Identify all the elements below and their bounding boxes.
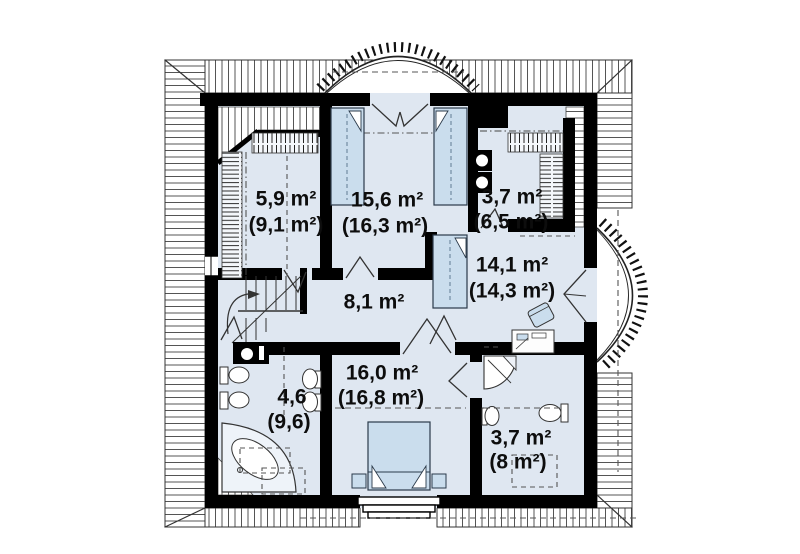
room-area-label: 3,7 m²	[491, 427, 552, 450]
bed-icon	[434, 108, 467, 205]
clothes-rail-icon	[252, 133, 318, 153]
wall-top-left-seg	[200, 93, 370, 106]
roof-band-right-upper	[597, 93, 632, 208]
clothes-rail-icon	[508, 133, 563, 152]
nightstand-icon	[352, 474, 366, 488]
wall-bottom-right-seg	[437, 495, 597, 508]
room-area-label: 15,6 m²	[351, 189, 423, 212]
roof-band-bottom-left	[205, 508, 360, 527]
wall-bottom-left-seg	[205, 495, 360, 508]
clothes-rail-icon	[222, 152, 242, 278]
room-area-total-label: (16,3 m²)	[342, 215, 428, 238]
wall-wardrobe-right-east	[563, 118, 575, 232]
bidet-icon	[220, 392, 249, 409]
bed-icon	[433, 235, 467, 308]
wall-right-upper	[584, 93, 597, 268]
desk-icon	[512, 330, 554, 353]
entrance-steps	[358, 497, 440, 518]
room-area-total-label: (9,6)	[267, 411, 310, 434]
room-area-label: 14,1 m²	[476, 254, 548, 277]
room-area-total-label: (16,8 m²)	[338, 387, 424, 410]
floor-plan: 5,9 m² (9,1 m²) 15,6 m² (16,3 m²) 3,7 m²…	[0, 0, 800, 554]
toilet-icon	[220, 367, 249, 384]
roof-band-right-lower	[597, 373, 632, 508]
room-area-label: 16,0 m²	[346, 362, 418, 385]
sink-icon	[482, 407, 499, 426]
nightstand-icon	[432, 474, 446, 488]
window-left-wall	[205, 256, 218, 276]
room-area-label: 4,6	[277, 386, 306, 409]
room-area-label: 5,9 m²	[256, 188, 317, 211]
washing-machine-icon	[241, 348, 254, 361]
wall-south-b	[332, 342, 400, 355]
room-area-total-label: (9,1 m²)	[249, 214, 324, 237]
washing-machine-icon	[472, 150, 492, 171]
floor-plan-drawing: 5,9 m² (9,1 m²) 15,6 m² (16,3 m²) 3,7 m²…	[0, 0, 800, 554]
wall-wardrobe-right-notch	[470, 106, 508, 128]
double-bed-icon	[368, 422, 430, 490]
room-area-label: 8,1 m²	[344, 291, 405, 314]
clothes-rail-icon	[540, 154, 563, 218]
wall-stair-newel	[300, 268, 307, 314]
wall-hall-north-b	[312, 268, 343, 280]
wall-bedroom-bottom-west	[320, 342, 332, 495]
room-area-total-label: (8 m²)	[489, 451, 546, 474]
room-area-total-label: (14,3 m²)	[469, 280, 555, 303]
toilet-icon	[539, 404, 568, 422]
wall-bedroom-bottom-east-b	[470, 398, 482, 495]
room-area-label: 3,7 m²	[482, 186, 543, 209]
room-area-total-label: (6,5 m²)	[474, 211, 549, 234]
wall-wardrobe-bedroom-top	[320, 93, 332, 280]
roof-band-left	[165, 60, 205, 527]
wall-bedroom-bottom-east-a	[470, 342, 482, 362]
washing-machine-niche	[233, 342, 269, 364]
wall-left	[205, 93, 218, 508]
wall-top-right-seg	[430, 93, 597, 106]
